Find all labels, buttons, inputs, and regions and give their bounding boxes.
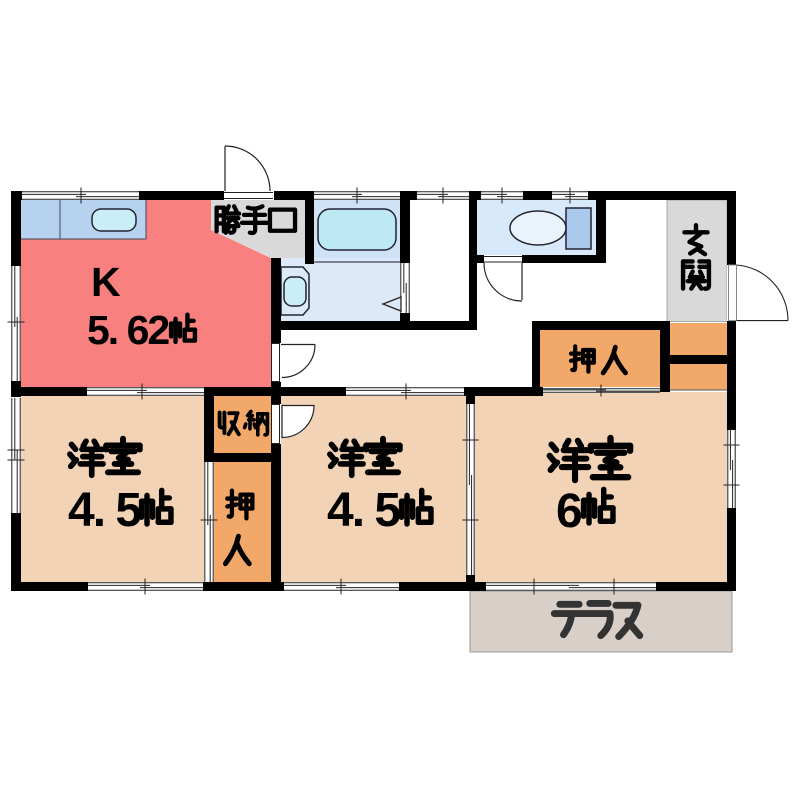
svg-text:K: K	[91, 259, 121, 305]
svg-text:5. 62: 5. 62	[87, 307, 169, 353]
svg-text:4. 5: 4. 5	[327, 484, 400, 537]
svg-text:4. 5: 4. 5	[68, 484, 141, 537]
svg-text:6: 6	[556, 485, 583, 538]
